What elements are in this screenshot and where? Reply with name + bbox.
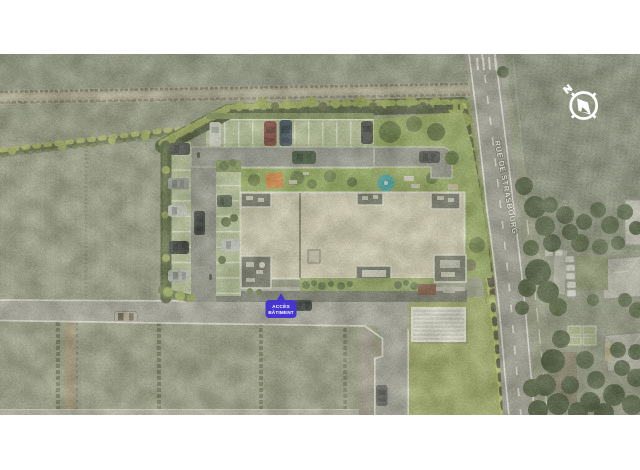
svg-text:BÂTIMENT: BÂTIMENT [268, 309, 294, 316]
